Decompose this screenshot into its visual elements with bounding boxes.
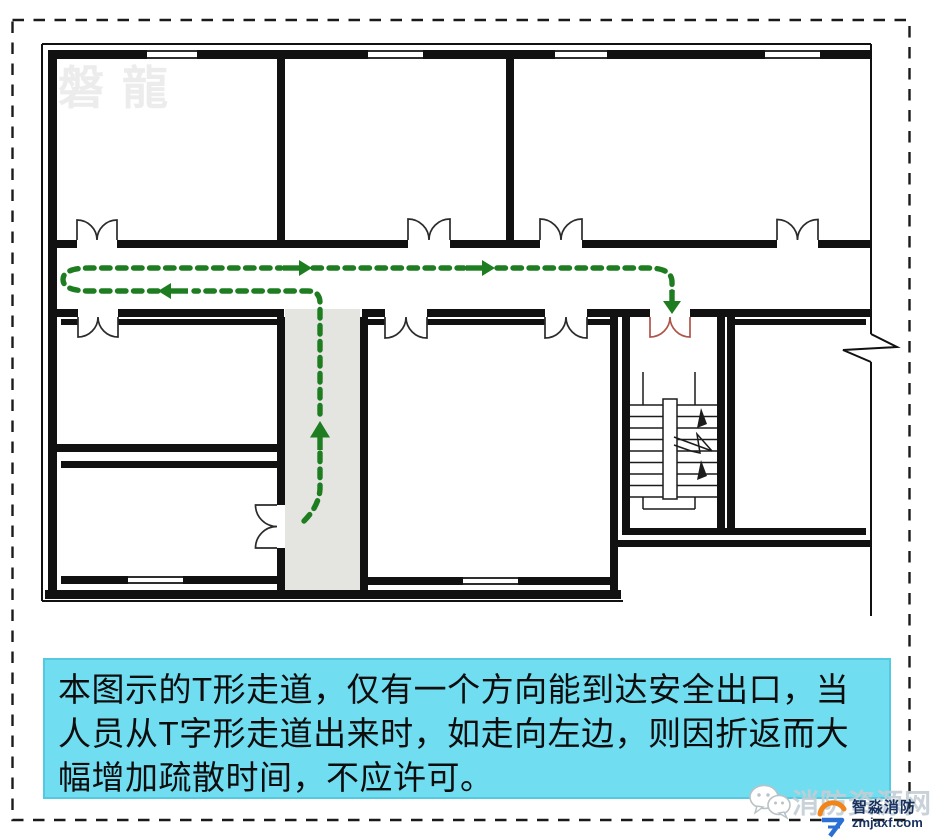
stair-landing [663, 399, 677, 499]
door-room3-right [777, 220, 818, 241]
door-room3-left [540, 219, 582, 240]
door-middle-room-left [385, 317, 427, 338]
stair-direction-arrow-upper [697, 408, 707, 428]
screenshot-root: { "colors": { "wall": "#111111", "route-… [0, 0, 941, 838]
route-arrow-left [158, 283, 188, 299]
door-middle-room-right [545, 317, 587, 338]
exit-door-red [650, 317, 690, 337]
route-arrow-right-2 [466, 260, 495, 276]
caption-box: 本图示的T形走道，仅有一个方向能到达安全出口，当 人员从T字形走道出来时，如走向… [43, 658, 891, 799]
caption-line-2: 人员从T字形走道出来时，如走向左边，则因折返而大 [45, 712, 889, 756]
walls [45, 50, 871, 599]
door-room-b-side [256, 505, 278, 548]
door-lower-left-room [78, 317, 118, 337]
door-room2 [408, 219, 450, 240]
brand-logo-block: 智淼消防 zmjaxf.com [816, 800, 936, 838]
stair-break-symbol [674, 434, 712, 453]
route-to-exit [497, 268, 672, 292]
wechat-icon [747, 783, 793, 821]
evacuation-route [63, 260, 681, 521]
route-arrow-right-1 [283, 260, 312, 276]
route-u-turn [63, 268, 281, 291]
route-arrow-down [663, 290, 681, 314]
wall-break-symbol [843, 334, 897, 362]
brand-name: 智淼消防 [852, 800, 923, 816]
door-room1 [77, 220, 117, 240]
staircase [630, 372, 717, 509]
brand-domain: zmjaxf.com [852, 816, 923, 830]
watermark-panlong: 磐龍 [58, 52, 186, 118]
brand-logo-icon [816, 800, 850, 838]
caption-line-1: 本图示的T形走道，仅有一个方向能到达安全出口，当 [45, 660, 889, 712]
